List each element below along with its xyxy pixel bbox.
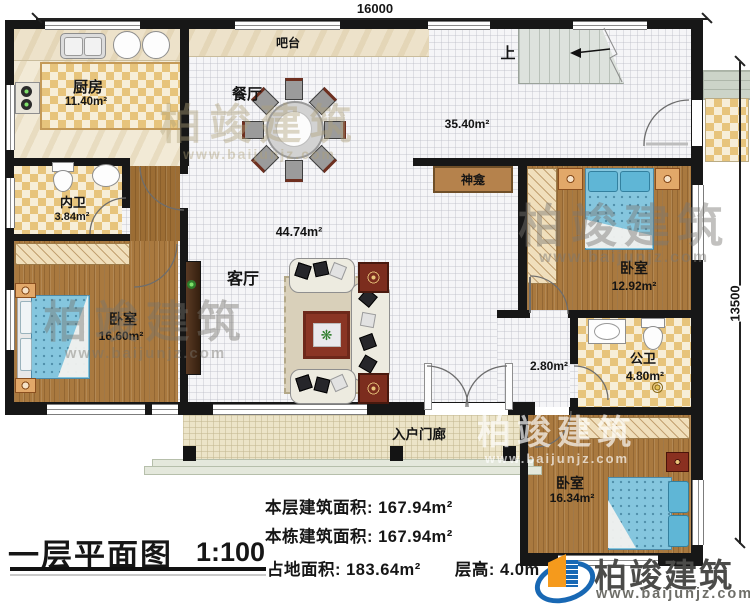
bedroom-bottom-area: 16.34m² bbox=[550, 492, 595, 504]
wall-bath-inner-right bbox=[122, 166, 130, 208]
bedroom-left-wardrobe bbox=[15, 243, 130, 265]
wall-bath-inner-bottom bbox=[14, 234, 130, 241]
stat-value: 167.94m² bbox=[378, 499, 453, 517]
floor-plan-canvas: 神龛 ❋ bbox=[0, 0, 750, 614]
stat-floor-area: 本层建筑面积: 167.94m² bbox=[265, 494, 453, 518]
porch-column-2 bbox=[390, 446, 403, 461]
side-porch-tile bbox=[705, 98, 749, 162]
dim-top-label: 16000 bbox=[353, 1, 397, 16]
living-label: 客厅 bbox=[227, 272, 259, 288]
title-underline bbox=[10, 567, 266, 571]
dining-label: 餐厅 bbox=[232, 87, 262, 102]
bed-left-pillow-2 bbox=[20, 338, 32, 371]
entry-door-gap bbox=[425, 403, 508, 415]
floor-drain bbox=[652, 382, 663, 393]
window-kitchen-top bbox=[45, 21, 140, 30]
porch-label: 入户门廊 bbox=[392, 428, 446, 442]
plant-icon bbox=[187, 280, 196, 289]
stat-label: 层高: bbox=[455, 561, 495, 579]
wall-corridor-stub bbox=[180, 166, 188, 174]
shrine-cabinet: 神龛 bbox=[433, 166, 513, 193]
bath-inner-area: 3.84m² bbox=[55, 212, 90, 223]
stat-building-area: 本栋建筑面积: 167.94m² bbox=[265, 523, 453, 547]
entry-porch-floor bbox=[183, 415, 520, 459]
title-underline-shadow bbox=[10, 574, 266, 576]
sofa-pillow bbox=[313, 261, 330, 278]
porch-column-1 bbox=[183, 446, 196, 461]
window-bath-inner-left bbox=[6, 178, 15, 228]
wall-bedroom-bottom-left bbox=[520, 415, 528, 566]
wall-bedroom-bottom-top-b bbox=[569, 407, 703, 415]
bed-bottom-pillow-1 bbox=[668, 481, 689, 513]
logo-building-icon-blue bbox=[566, 559, 578, 587]
kitchen-stove bbox=[15, 82, 40, 114]
stat-label: 本栋建筑面积: bbox=[265, 528, 373, 546]
window-bedroom-left bbox=[6, 290, 15, 350]
wall-hall-divider bbox=[413, 158, 691, 166]
wall-bath-public-left-a bbox=[570, 318, 578, 364]
dim-right-label: 13500 bbox=[728, 285, 743, 321]
bed-right-pillow-2 bbox=[620, 171, 650, 192]
window-hall-top-b bbox=[573, 21, 647, 30]
bar-label: 吧台 bbox=[276, 37, 300, 49]
window-kitchen-left bbox=[6, 85, 15, 150]
bed-left-pillow-1 bbox=[20, 301, 32, 334]
stat-label: 占地面积: bbox=[267, 561, 341, 579]
bedroom-left-area: 16.60m² bbox=[99, 330, 144, 342]
stat-value: 167.94m² bbox=[378, 528, 453, 546]
window-hall-top-a bbox=[428, 21, 490, 30]
brand-url: www.baijunjz.com bbox=[596, 586, 750, 602]
dim-top-line bbox=[36, 18, 708, 20]
corridor-floor bbox=[130, 166, 180, 241]
coffee-table: ❋ bbox=[303, 311, 350, 359]
bed-bottom-pillow-2 bbox=[668, 515, 689, 547]
window-dining-top bbox=[235, 21, 340, 30]
side-table-2 bbox=[358, 373, 389, 404]
entry-door-leaf-right bbox=[505, 363, 513, 410]
hall-area: 35.40m² bbox=[445, 118, 490, 130]
nightstand-left-2 bbox=[15, 378, 36, 393]
logo-building-icon bbox=[548, 554, 566, 587]
kitchen-basin-1 bbox=[113, 31, 141, 59]
wall-bath-public-left-b bbox=[570, 398, 578, 407]
wall-mid-vertical bbox=[518, 158, 527, 310]
side-door-gap bbox=[692, 100, 702, 146]
bed-right-pillow-1 bbox=[588, 171, 618, 192]
nightstand-left-1 bbox=[15, 283, 36, 298]
stat-value: 183.64m² bbox=[346, 561, 421, 579]
bath-inner-label: 内卫 bbox=[60, 196, 86, 209]
brand-logo bbox=[536, 546, 592, 604]
window-bedroom-right bbox=[692, 185, 704, 260]
kitchen-sink bbox=[60, 33, 106, 59]
kitchen-rug bbox=[40, 62, 184, 130]
sink-public-counter bbox=[588, 319, 626, 344]
nightstand-right-2 bbox=[655, 168, 680, 190]
kitchen-basin-2 bbox=[142, 31, 170, 59]
dining-chair bbox=[285, 160, 303, 182]
bar-counter bbox=[189, 29, 429, 57]
porch-column-3 bbox=[503, 446, 516, 461]
bath-public-area: 4.80m² bbox=[626, 370, 664, 382]
stat-label: 本层建筑面积: bbox=[265, 499, 373, 517]
bedroom-right-wardrobe bbox=[527, 168, 557, 284]
window-bedroom-left-south-a bbox=[47, 404, 145, 415]
side-porch-steps bbox=[703, 70, 750, 100]
tv-wall bbox=[185, 261, 201, 375]
bedroom-bottom-label: 卧室 bbox=[556, 476, 584, 490]
dining-chair bbox=[285, 78, 303, 100]
living-area: 44.74m² bbox=[276, 226, 323, 239]
window-bedroom-bottom-right bbox=[692, 480, 704, 545]
wall-bedroom-right-bottom-a bbox=[497, 310, 530, 318]
window-living-south bbox=[213, 404, 367, 415]
wall-kitchen-right bbox=[180, 28, 189, 166]
dining-chair bbox=[324, 121, 346, 139]
corridor-area: 2.80m² bbox=[530, 360, 568, 372]
shrine-label: 神龛 bbox=[461, 174, 485, 186]
window-bedroom-left-south-b bbox=[152, 404, 178, 415]
bath-public-label: 公卫 bbox=[630, 352, 656, 365]
nightstand-bottom bbox=[666, 452, 689, 472]
porch-step-2 bbox=[144, 466, 542, 475]
kitchen-area: 11.40m² bbox=[65, 97, 107, 109]
bedroom-right-area: 12.92m² bbox=[612, 280, 657, 292]
nightstand-right-1 bbox=[558, 168, 583, 190]
plan-scale: 1:100 bbox=[196, 537, 265, 568]
entry-door-leaf-left bbox=[424, 363, 432, 410]
stat-value: 4.0m bbox=[500, 561, 540, 579]
bedroom-right-label: 卧室 bbox=[620, 261, 648, 275]
sofa-pillow bbox=[360, 312, 376, 328]
sink-inner bbox=[92, 164, 120, 187]
stairs-up-label: 上 bbox=[500, 46, 515, 61]
bedroom-left-label: 卧室 bbox=[109, 312, 137, 326]
kitchen-label: 厨房 bbox=[73, 80, 103, 95]
dining-chair bbox=[242, 121, 264, 139]
stat-land-height: 占地面积: 183.64m² 层高: 4.0m bbox=[267, 556, 540, 580]
side-table-1 bbox=[358, 262, 389, 293]
dining-table-top bbox=[276, 111, 312, 147]
bedroom-bottom-wardrobe bbox=[578, 417, 690, 439]
wall-bedroom-right-bottom-b bbox=[568, 310, 691, 318]
coffee-table-plant: ❋ bbox=[313, 323, 341, 347]
